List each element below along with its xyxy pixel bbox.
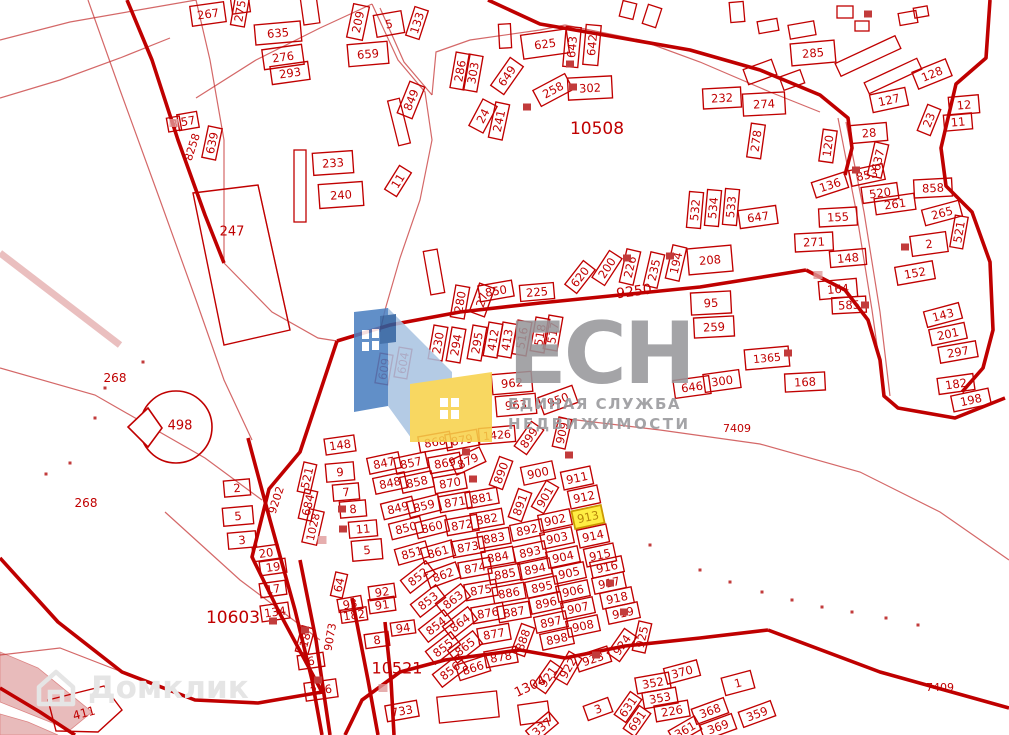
- parcel-label: 1: [733, 675, 744, 690]
- parcel-label: 2: [233, 481, 242, 496]
- parcel-963[interactable]: 963: [495, 393, 537, 416]
- parcel-label: 853: [415, 589, 441, 614]
- parcel-11[interactable]: 11: [348, 520, 377, 538]
- parcel-label: 620: [568, 264, 593, 290]
- area-label-9250: 9250: [615, 281, 653, 302]
- parcel-148[interactable]: 148: [324, 435, 356, 455]
- parcel-370[interactable]: 370: [664, 660, 701, 684]
- area-label-8258: 8258: [182, 132, 203, 163]
- parcel-label: 890: [491, 460, 512, 485]
- parcel-label: 609: [375, 357, 393, 381]
- parcel-label: 8: [372, 633, 381, 648]
- parcel-278[interactable]: 278: [747, 123, 766, 159]
- building-marker-pink: [318, 536, 327, 544]
- parcel-23[interactable]: 23: [917, 104, 940, 135]
- parcel-label: 64: [331, 576, 348, 593]
- parcel-208[interactable]: 208: [687, 245, 733, 275]
- parcel-300[interactable]: 300: [703, 370, 741, 393]
- parcel-533[interactable]: 533: [722, 188, 739, 225]
- context-parcel[interactable]: [193, 185, 290, 345]
- parcel-label: 225: [525, 284, 548, 300]
- parcel-label: 534: [705, 196, 721, 219]
- parcel-303[interactable]: 303: [463, 54, 483, 92]
- parcel-label: 3: [238, 533, 247, 548]
- building-marker: [314, 677, 322, 684]
- boundary-line: [0, 368, 262, 500]
- parcel-label: 94: [395, 620, 411, 636]
- parcel-label: 361: [672, 718, 698, 735]
- parcel-label: 635: [266, 25, 289, 41]
- parcel-label: 261: [883, 196, 907, 213]
- parcel-label: 155: [827, 209, 850, 224]
- parcel-label: 647: [746, 209, 770, 226]
- parcel-label: 240: [330, 187, 353, 202]
- parcel-label: 136: [817, 175, 842, 195]
- parcel-1365[interactable]: 1365: [744, 346, 790, 370]
- parcel-label: 861: [426, 542, 451, 562]
- parcel-label: 233: [322, 155, 345, 170]
- parcel-label: 863: [440, 588, 466, 613]
- building-outline: [423, 249, 444, 295]
- parcel-609[interactable]: 609: [375, 353, 394, 385]
- parcel-359[interactable]: 359: [738, 701, 775, 728]
- building-outline: [619, 1, 636, 20]
- building-outline: [642, 4, 661, 27]
- survey-dot: [761, 591, 764, 594]
- building-marker: [784, 350, 792, 357]
- survey-dot: [851, 611, 854, 614]
- parcel-label: 57: [180, 113, 197, 129]
- parcel-label: 604: [394, 351, 412, 375]
- parcel-label: 5: [384, 16, 394, 31]
- parcel-label: 851: [400, 543, 425, 563]
- parcel-870[interactable]: 870: [433, 472, 467, 493]
- parcel-label: 265: [930, 203, 955, 222]
- cadastral-map-viewport[interactable]: 2672756352762932095133659849857639233240…: [0, 0, 1009, 735]
- area-label-10508: 10508: [570, 119, 624, 139]
- parcel-label: 849: [400, 87, 421, 113]
- parcel-label: 639: [203, 131, 221, 155]
- parcel-label: 300: [710, 373, 734, 390]
- parcel-label: 659: [356, 46, 379, 62]
- parcel-label: 888: [513, 627, 534, 652]
- parcel-9[interactable]: 9: [325, 462, 354, 482]
- parcel-label: 28: [861, 125, 877, 140]
- parcel-label: 900: [526, 464, 550, 482]
- parcel-label: 7: [342, 485, 351, 500]
- building-marker: [620, 609, 628, 616]
- parcel-899[interactable]: 899: [514, 421, 543, 454]
- parcel-label: 6: [306, 654, 315, 669]
- building-marker: [864, 11, 872, 18]
- parcel-label: 133: [407, 10, 427, 35]
- parcel-94[interactable]: 94: [390, 619, 416, 636]
- parcel-136[interactable]: 136: [811, 172, 848, 198]
- parcel-133[interactable]: 133: [406, 7, 429, 40]
- parcel-5[interactable]: 5: [373, 11, 404, 38]
- parcel-label: 258: [540, 79, 566, 102]
- parcel-label: 12: [956, 97, 972, 112]
- parcel-241[interactable]: 241: [488, 102, 509, 140]
- area-label-10521: 10521: [372, 659, 423, 678]
- building-marker: [606, 580, 614, 587]
- building-marker: [901, 244, 909, 251]
- parcel-925[interactable]: 925: [632, 621, 652, 653]
- parcel-155[interactable]: 155: [819, 207, 858, 227]
- parcel-label: 24: [473, 106, 492, 125]
- parcel-517[interactable]: 517: [543, 315, 563, 351]
- survey-dot: [791, 599, 794, 602]
- parcel-1[interactable]: 1: [721, 670, 755, 695]
- parcel-209[interactable]: 209: [347, 4, 370, 41]
- parcel-1426[interactable]: 1426: [478, 425, 515, 444]
- parcel-900[interactable]: 900: [520, 461, 555, 485]
- parcel-label: 274: [753, 96, 776, 111]
- parcel-275[interactable]: 275: [231, 0, 250, 27]
- parcel-120[interactable]: 120: [819, 129, 837, 163]
- parcel-909[interactable]: 909: [552, 417, 572, 449]
- parcel-64[interactable]: 64: [330, 572, 349, 599]
- parcel-639[interactable]: 639: [202, 126, 222, 160]
- parcel-901[interactable]: 901: [531, 481, 558, 514]
- parcel-882[interactable]: 882: [470, 508, 504, 529]
- parcel-label: 899: [517, 425, 541, 451]
- building-marker: [861, 302, 869, 309]
- parcel-516[interactable]: 516: [512, 320, 532, 356]
- parcel-label: 901: [533, 484, 556, 510]
- building-outline: [757, 18, 779, 33]
- parcel-297[interactable]: 297: [938, 341, 978, 363]
- parcel-259[interactable]: 259: [694, 316, 735, 338]
- building-outline: [855, 21, 869, 31]
- parcel-label: 11: [388, 171, 408, 191]
- parcel-label: 866: [460, 658, 485, 678]
- parcel-label: 912: [572, 488, 596, 506]
- parcel-label: 3: [592, 701, 604, 717]
- building-outline: [300, 0, 320, 25]
- parcel-label: 200: [595, 255, 619, 281]
- survey-dot: [917, 624, 920, 627]
- building-marker: [339, 526, 347, 533]
- parcel-label: 532: [687, 198, 703, 221]
- parcel-883[interactable]: 883: [477, 527, 511, 548]
- parcel-label: 533: [723, 195, 739, 218]
- parcel-label: 914: [581, 527, 605, 545]
- parcel-649[interactable]: 649: [491, 57, 524, 94]
- boundary-line: [0, 38, 170, 98]
- parcel-label: 20: [258, 545, 274, 561]
- parcel-646[interactable]: 646: [673, 376, 711, 399]
- parcel-label: 9: [336, 465, 345, 480]
- parcel-862[interactable]: 862: [425, 562, 461, 588]
- parcel-891[interactable]: 891: [508, 489, 531, 522]
- parcel-label: 91: [374, 597, 390, 613]
- parcel-label: 271: [803, 234, 826, 249]
- parcel-148[interactable]: 148: [829, 248, 866, 267]
- parcel-28[interactable]: 28: [850, 122, 887, 143]
- parcel-label: 235: [645, 258, 664, 283]
- parcel-label: 19: [265, 559, 281, 575]
- parcel-881[interactable]: 881: [465, 487, 499, 508]
- parcel-294[interactable]: 294: [446, 327, 466, 363]
- parcel-label: 148: [836, 250, 859, 266]
- parcel-label: 23: [920, 111, 938, 130]
- parcel-5[interactable]: 5: [351, 539, 383, 562]
- parcel-285[interactable]: 285: [790, 40, 836, 66]
- parcel-label: 950: [545, 390, 570, 411]
- parcel-194[interactable]: 194: [665, 245, 686, 281]
- parcel-890[interactable]: 890: [489, 457, 512, 490]
- parcel-label: 241: [490, 109, 508, 133]
- parcel-128[interactable]: 128: [912, 59, 952, 89]
- parcel-2[interactable]: 2: [910, 232, 948, 257]
- parcel-label: 152: [903, 264, 927, 282]
- parcel-label: 337: [529, 715, 555, 735]
- parcel-230[interactable]: 230: [428, 325, 448, 361]
- survey-dot: [699, 569, 702, 572]
- parcel-label: 625: [533, 36, 557, 53]
- parcel-635[interactable]: 635: [254, 21, 302, 45]
- building-marker: [469, 476, 477, 483]
- survey-dot: [729, 581, 732, 584]
- parcel-91[interactable]: 91: [368, 596, 396, 614]
- parcel-label: 276: [271, 49, 295, 66]
- boundary-line: [560, 418, 1009, 560]
- area-label-268: 268: [75, 496, 98, 510]
- building-marker: [462, 449, 470, 456]
- building-marker: [592, 652, 600, 659]
- survey-dot: [104, 387, 107, 390]
- area-label-10603: 10603: [206, 608, 260, 628]
- parcel-label: 891: [510, 492, 531, 517]
- boundary-line: [224, 263, 337, 341]
- building-marker: [565, 452, 573, 459]
- parcel-label: 164: [826, 281, 849, 297]
- building-outline: [437, 691, 499, 723]
- parcel-225[interactable]: 225: [519, 283, 554, 302]
- parcel-label: 5: [234, 509, 243, 524]
- parcel-11[interactable]: 11: [385, 165, 412, 196]
- area-label-247: 247: [220, 225, 245, 240]
- survey-dot: [94, 417, 97, 420]
- building-outline: [294, 150, 306, 222]
- parcel-label: 128: [919, 63, 945, 84]
- parcel-271[interactable]: 271: [795, 232, 834, 252]
- area-label-268: 268: [104, 371, 127, 385]
- road-band: [0, 253, 120, 345]
- parcel-534[interactable]: 534: [704, 189, 721, 226]
- parcel-label: 924: [610, 632, 634, 658]
- parcel-267[interactable]: 267: [190, 2, 226, 27]
- building-marker: [269, 618, 277, 625]
- building-outline: [729, 1, 745, 22]
- parcel-232[interactable]: 232: [703, 87, 742, 109]
- parcel-950[interactable]: 950: [538, 385, 578, 414]
- parcel-532[interactable]: 532: [686, 191, 703, 228]
- parcel-label: 267: [196, 6, 220, 23]
- building-marker-pink: [379, 684, 388, 692]
- parcel-label: 95: [703, 296, 718, 311]
- parcel-label: 649: [495, 63, 519, 89]
- building-outline: [837, 6, 853, 18]
- parcel-label: 143: [931, 305, 956, 324]
- parcel-label: 963: [504, 397, 527, 413]
- building-marker-pink: [814, 271, 823, 279]
- parcel-7[interactable]: 7: [332, 483, 359, 501]
- parcel-label: 259: [703, 319, 726, 334]
- survey-dot: [142, 361, 145, 364]
- parcel-887[interactable]: 887: [497, 601, 531, 622]
- parcel-521[interactable]: 521: [949, 215, 968, 249]
- parcel-168[interactable]: 168: [785, 372, 826, 392]
- building-marker: [566, 61, 574, 68]
- parcel-label: 637: [869, 148, 888, 173]
- parcel-label: 909: [553, 421, 572, 446]
- area-label-7409: 7409: [926, 681, 954, 694]
- building-outline: [788, 21, 816, 39]
- parcel-label: 1426: [483, 428, 512, 443]
- parcel-95[interactable]: 95: [690, 291, 731, 315]
- boundary-line: [0, 0, 196, 40]
- parcel-label: 2: [924, 237, 933, 252]
- parcel-label: 521: [298, 466, 317, 491]
- area-label-1304: 1304: [512, 673, 548, 701]
- survey-dot: [649, 544, 652, 547]
- parcel-17[interactable]: 17: [259, 580, 287, 598]
- parcel-label: 642: [584, 33, 600, 56]
- parcel-label: 226: [309, 682, 333, 699]
- parcel-872[interactable]: 872: [445, 514, 479, 535]
- parcel-label: 925: [633, 625, 652, 650]
- parcel-label: 148: [328, 437, 352, 454]
- parcel-label: 359: [744, 704, 769, 725]
- parcel-label: 285: [801, 45, 824, 61]
- parcel-5[interactable]: 5: [222, 506, 253, 527]
- parcel-label: 5: [363, 543, 372, 558]
- parcel-498-notch: [128, 408, 162, 447]
- building-marker: [623, 255, 631, 262]
- parcel-200[interactable]: 200: [592, 250, 622, 285]
- building-marker: [666, 253, 674, 260]
- parcel-label: 293: [278, 65, 302, 82]
- parcel-733[interactable]: 733: [385, 700, 419, 721]
- parcel-604[interactable]: 604: [394, 347, 413, 379]
- parcel-877[interactable]: 877: [477, 623, 511, 644]
- parcel-152[interactable]: 152: [895, 261, 936, 285]
- survey-dot: [45, 473, 48, 476]
- parcel-label: 911: [565, 469, 589, 487]
- parcel-659[interactable]: 659: [347, 41, 389, 66]
- parcel-182[interactable]: 182: [340, 606, 368, 623]
- parcel-label: 302: [579, 80, 602, 95]
- parcel-label: 8: [349, 502, 358, 517]
- survey-dot: [69, 462, 72, 465]
- parcel-label: 17: [265, 581, 281, 597]
- parcel-label: 585: [838, 297, 861, 312]
- parcel-label: 168: [794, 374, 817, 389]
- building-marker: [301, 627, 309, 634]
- parcel-label: 208: [698, 252, 721, 268]
- map-svg[interactable]: 2672756352762932095133659849857639233240…: [0, 0, 1009, 735]
- survey-dot: [885, 617, 888, 620]
- building-marker: [569, 84, 577, 91]
- parcel-label: 643: [564, 35, 580, 58]
- survey-dot: [821, 606, 824, 609]
- parcel-240[interactable]: 240: [318, 181, 364, 208]
- parcel-label: 962: [500, 375, 523, 391]
- parcel-label: 370: [670, 662, 695, 681]
- area-label-7409: 7409: [723, 422, 751, 435]
- parcel-233[interactable]: 233: [312, 151, 353, 176]
- building-outline: [743, 59, 777, 84]
- building-marker: [523, 104, 531, 111]
- parcel-3[interactable]: 3: [583, 698, 613, 721]
- boundary-line: [372, 4, 432, 332]
- building-marker: [338, 506, 346, 513]
- road-line: [768, 630, 1009, 708]
- parcel-620[interactable]: 620: [565, 261, 595, 294]
- parcel-label: 11: [950, 114, 966, 129]
- parcel-647[interactable]: 647: [738, 205, 778, 228]
- parcel-label: 232: [711, 90, 734, 105]
- parcel-label: 521: [950, 220, 968, 244]
- parcel-label: 862: [430, 565, 455, 586]
- parcel-label: 646: [680, 379, 704, 396]
- parcel-3[interactable]: 3: [227, 531, 256, 549]
- parcel-226[interactable]: 226: [619, 249, 640, 285]
- parcel-label: 1365: [753, 351, 782, 366]
- parcel-962[interactable]: 962: [491, 371, 533, 394]
- area-label-498: 498: [168, 419, 193, 434]
- parcel-label: 858: [922, 180, 945, 195]
- building-marker-pink: [170, 119, 179, 127]
- parcel-label: 11: [355, 521, 371, 536]
- building-marker: [852, 167, 860, 174]
- parcel-57[interactable]: 57: [177, 111, 199, 130]
- parcel-label: 127: [877, 91, 901, 109]
- parcel-label: 854: [423, 614, 449, 639]
- area-label-9073: 9073: [322, 622, 340, 652]
- parcel-625[interactable]: 625: [521, 29, 570, 59]
